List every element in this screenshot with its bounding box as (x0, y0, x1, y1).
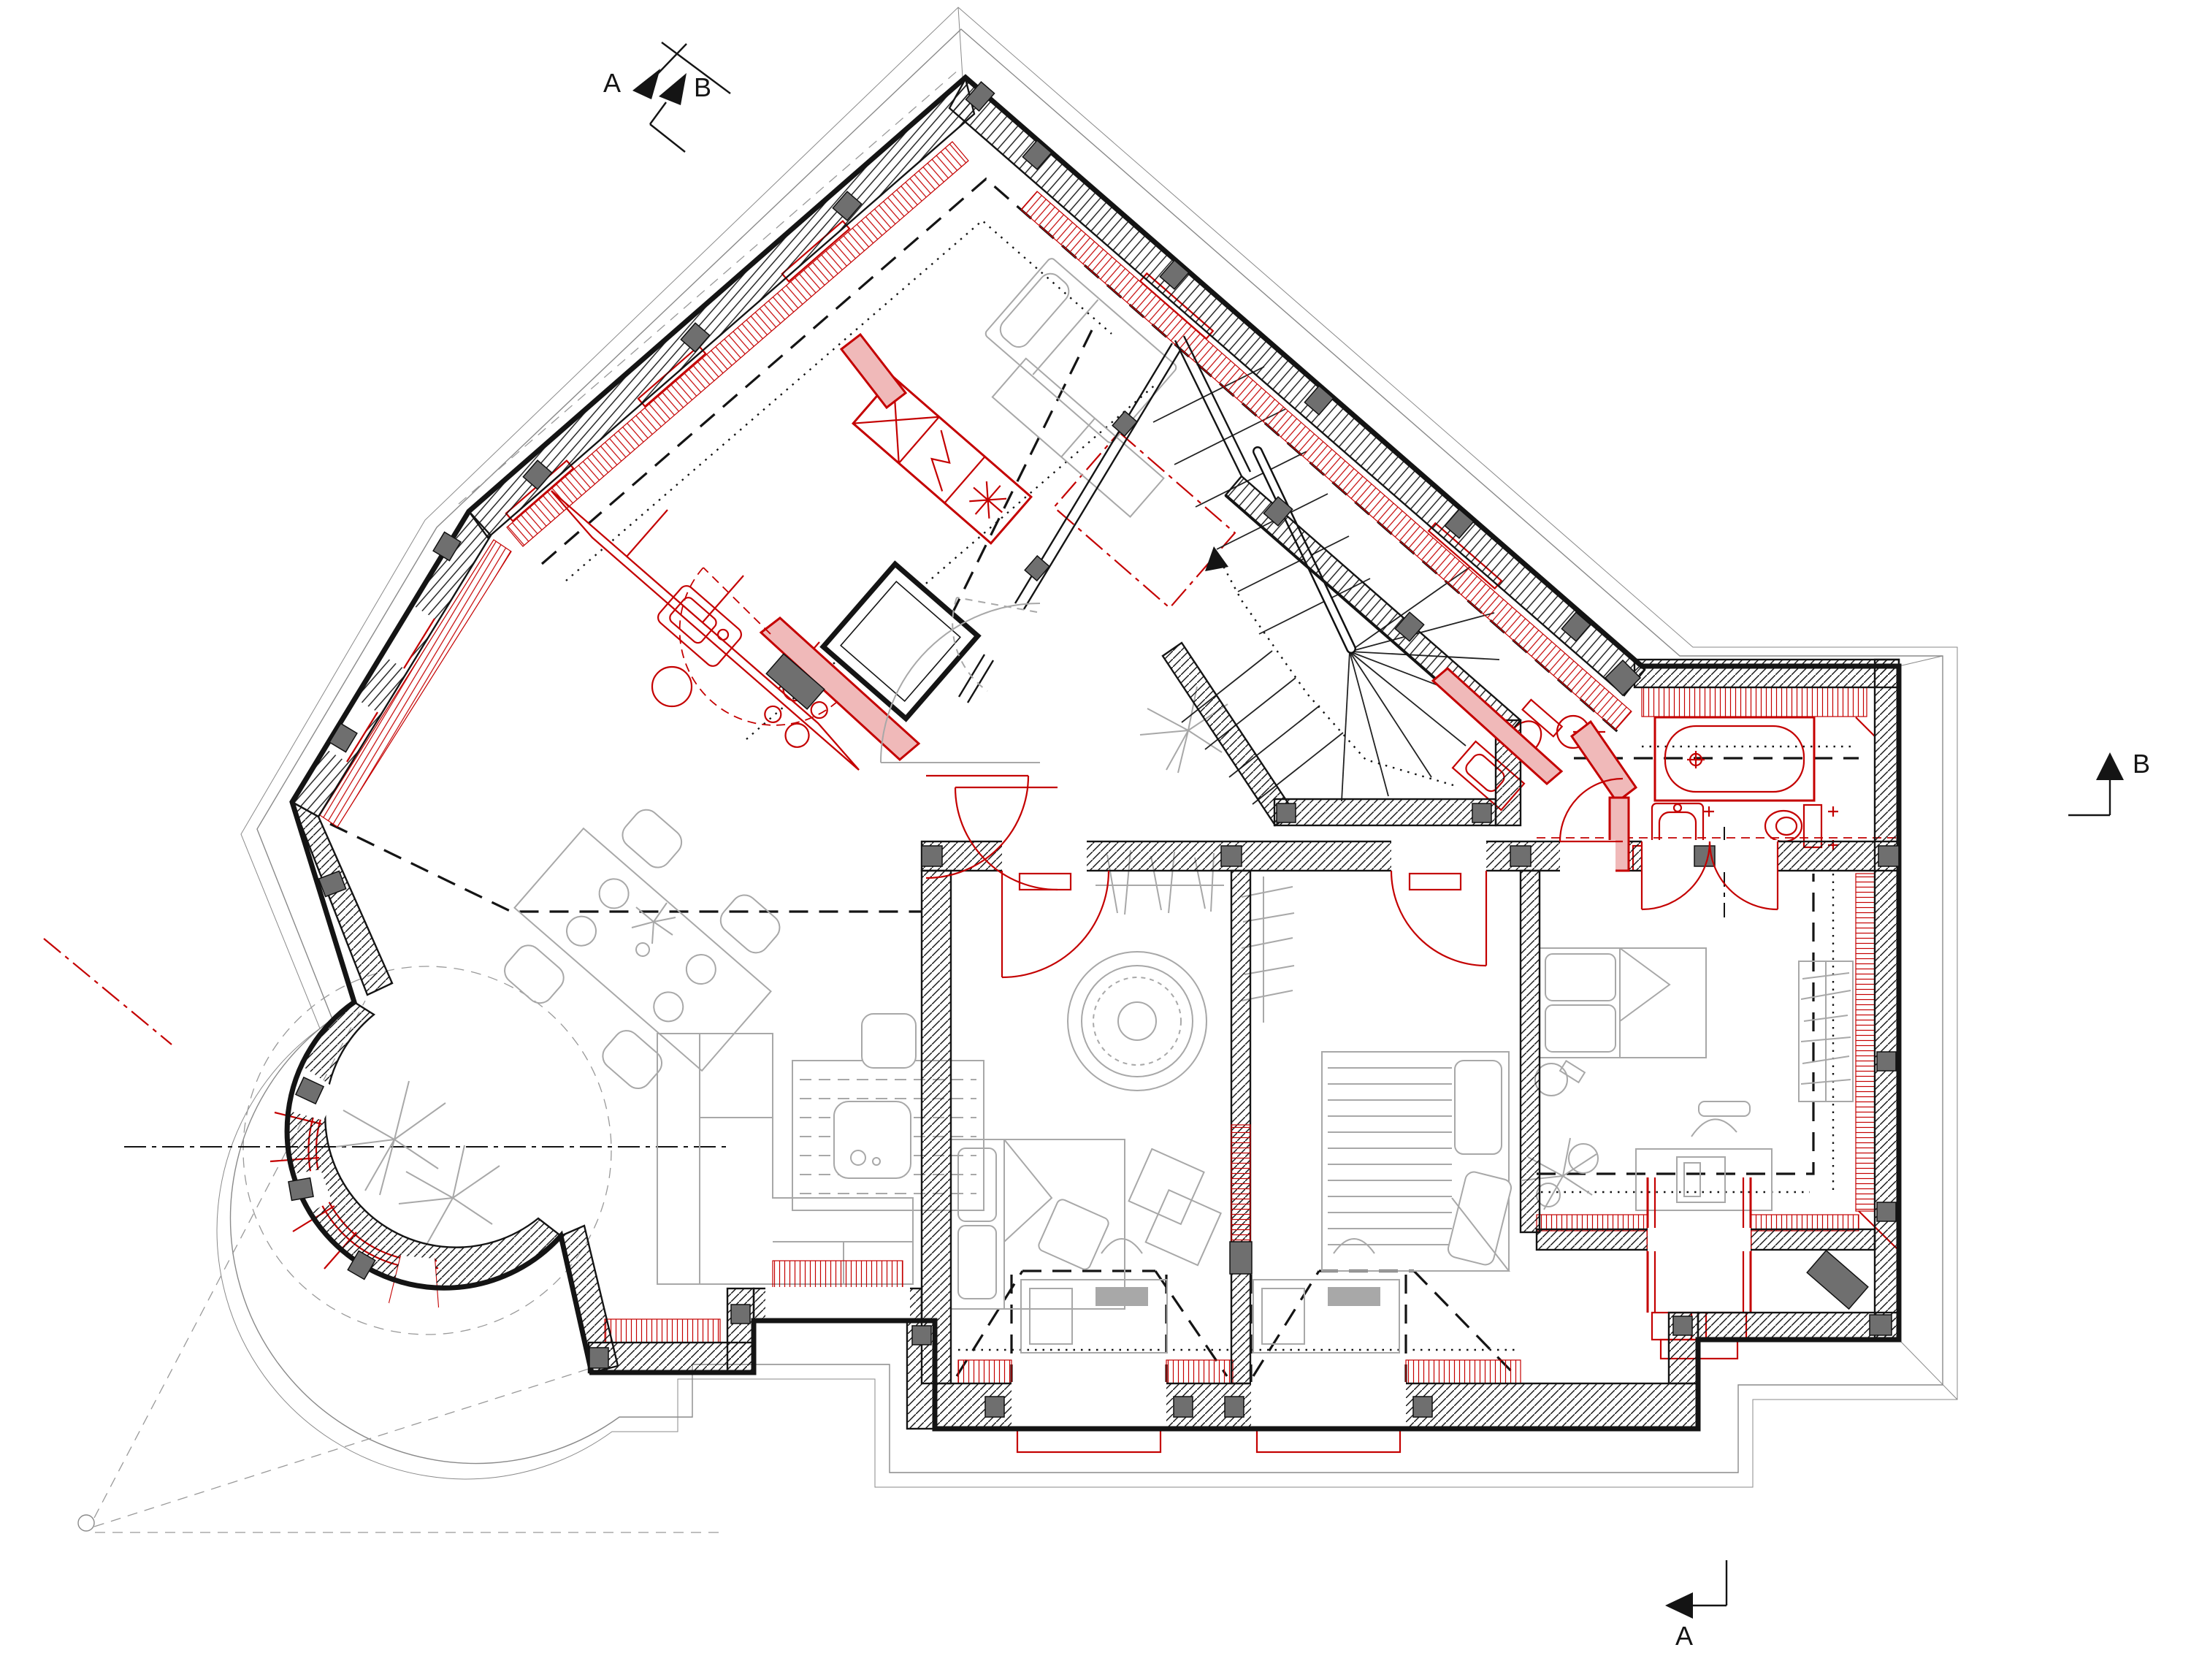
wall-west-upper (292, 511, 491, 817)
dining-table (476, 784, 809, 1115)
door-bedroom2 (1391, 871, 1486, 966)
new-wall-bath-1 (1572, 722, 1636, 802)
bed-room1 (951, 1139, 1125, 1309)
bed-room2 (1322, 1052, 1513, 1271)
floor-plan-page: A B B A (0, 0, 2191, 1680)
wall-ne (949, 79, 1645, 695)
wardrobe-attic (993, 359, 1164, 517)
desk-room2 (1253, 1239, 1399, 1353)
walls (287, 79, 1899, 1429)
floor-plan-drawing: A B B A (0, 0, 2191, 1680)
turret-wall (287, 1002, 561, 1288)
living-rug (792, 1014, 984, 1210)
wardrobe (1799, 961, 1853, 1101)
boiler-asterisk-icon (961, 473, 1014, 527)
section-label-b-top: B (694, 72, 711, 102)
new-wall-kitchen (841, 335, 906, 408)
door-bedroom1 (1002, 871, 1109, 977)
section-marker-b-top: B (650, 72, 711, 152)
kitchen-tall-units (853, 377, 1031, 543)
bed-room3 (1535, 948, 1706, 1096)
section-marker-a-bottom: A (1665, 1560, 1727, 1651)
section-label-a-top: A (603, 68, 621, 98)
section-label-a-bottom: A (1675, 1621, 1693, 1651)
section-marker-b-right: B (2068, 749, 2150, 815)
round-rug (1068, 952, 1234, 1265)
table-plant-icon (632, 903, 676, 944)
section-label-b-right: B (2133, 749, 2150, 779)
wall-openings (272, 605, 1778, 1430)
wall-posts (288, 82, 1899, 1417)
thin-wall (959, 336, 1250, 703)
